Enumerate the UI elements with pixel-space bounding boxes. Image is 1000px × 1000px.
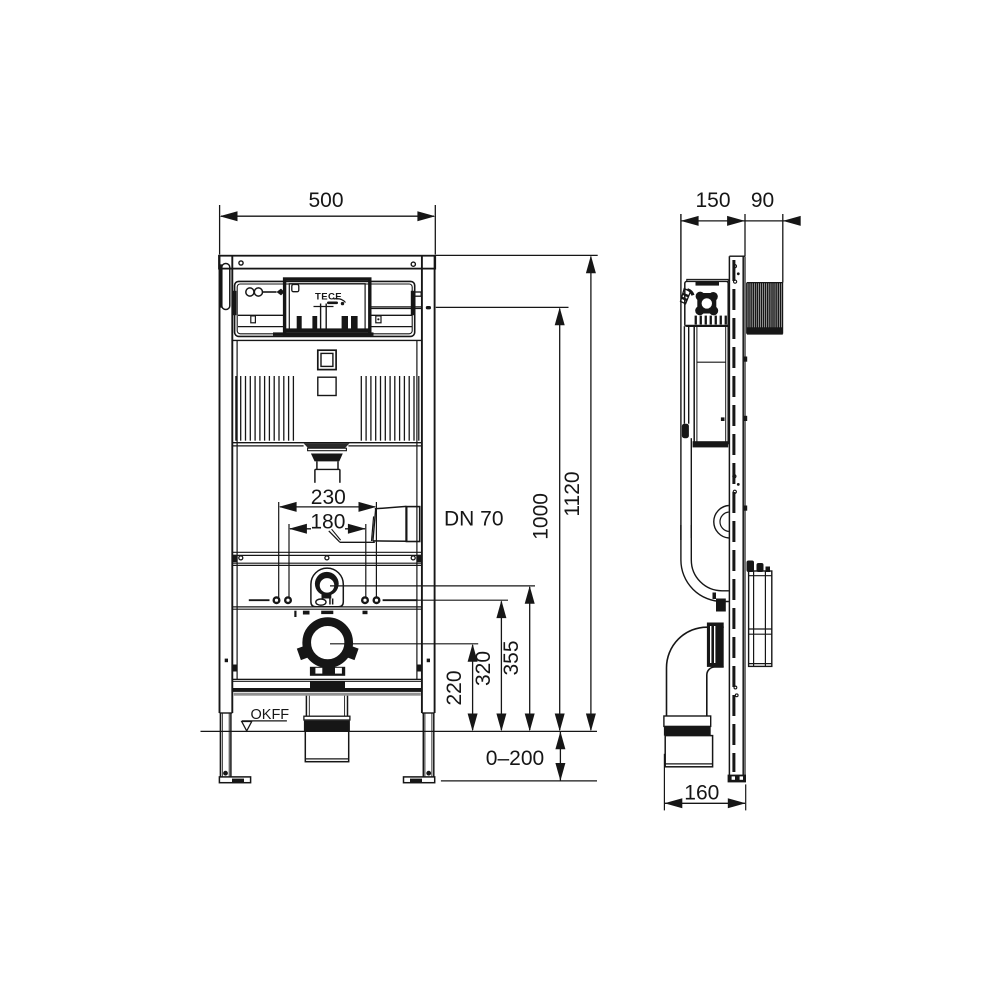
svg-text:DN 70: DN 70 xyxy=(444,508,504,531)
svg-text:220: 220 xyxy=(443,670,466,705)
svg-text:TECE: TECE xyxy=(315,292,342,303)
svg-text:1120: 1120 xyxy=(561,471,584,516)
svg-text:355: 355 xyxy=(500,640,523,675)
svg-text:320: 320 xyxy=(472,651,495,686)
svg-text:0–200: 0–200 xyxy=(486,747,544,770)
svg-text:230: 230 xyxy=(311,486,346,509)
svg-text:160: 160 xyxy=(684,782,719,805)
svg-text:90: 90 xyxy=(751,189,774,212)
svg-text:1000: 1000 xyxy=(530,493,553,540)
svg-text:500: 500 xyxy=(308,189,343,212)
svg-text:180: 180 xyxy=(310,511,345,534)
svg-text:150: 150 xyxy=(695,189,730,212)
